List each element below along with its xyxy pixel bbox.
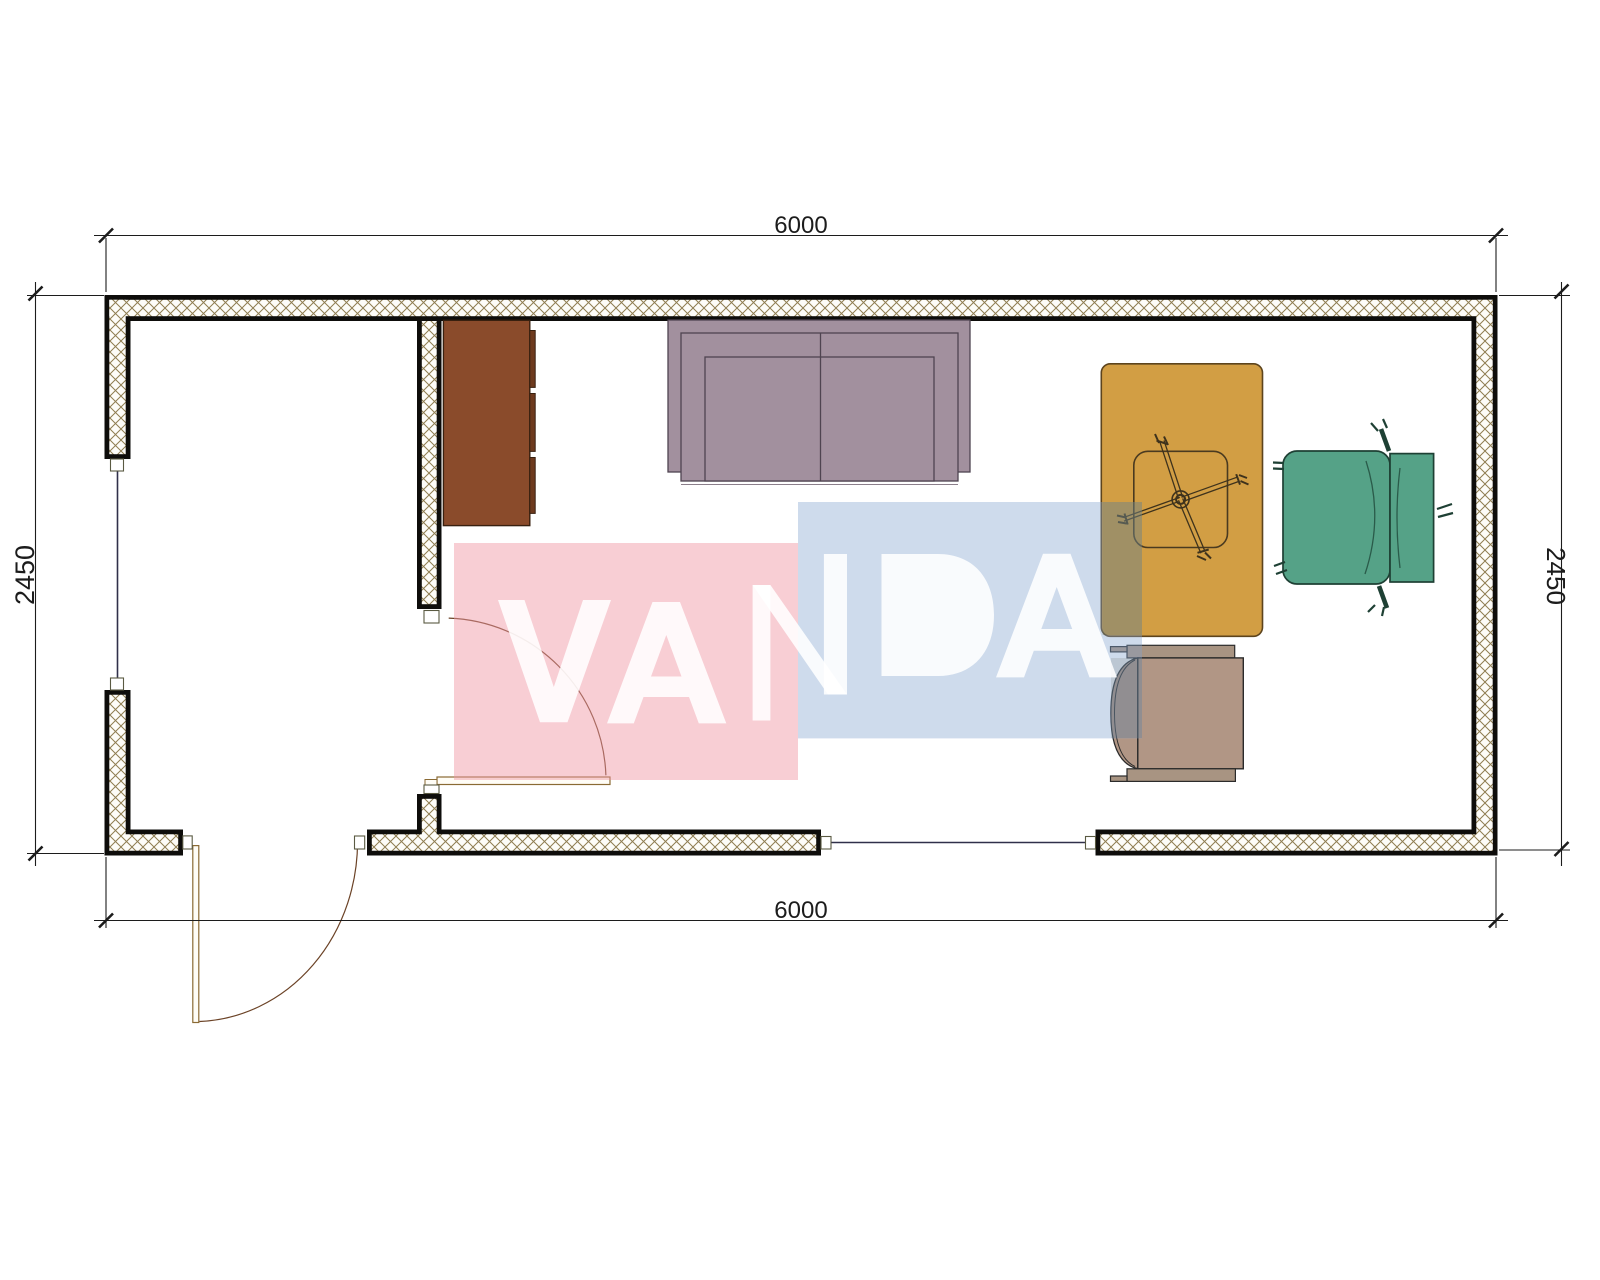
svg-text:6000: 6000: [774, 897, 827, 924]
svg-text:6000: 6000: [774, 212, 827, 239]
svg-text:2450: 2450: [1541, 547, 1571, 605]
svg-text:2450: 2450: [10, 545, 40, 605]
